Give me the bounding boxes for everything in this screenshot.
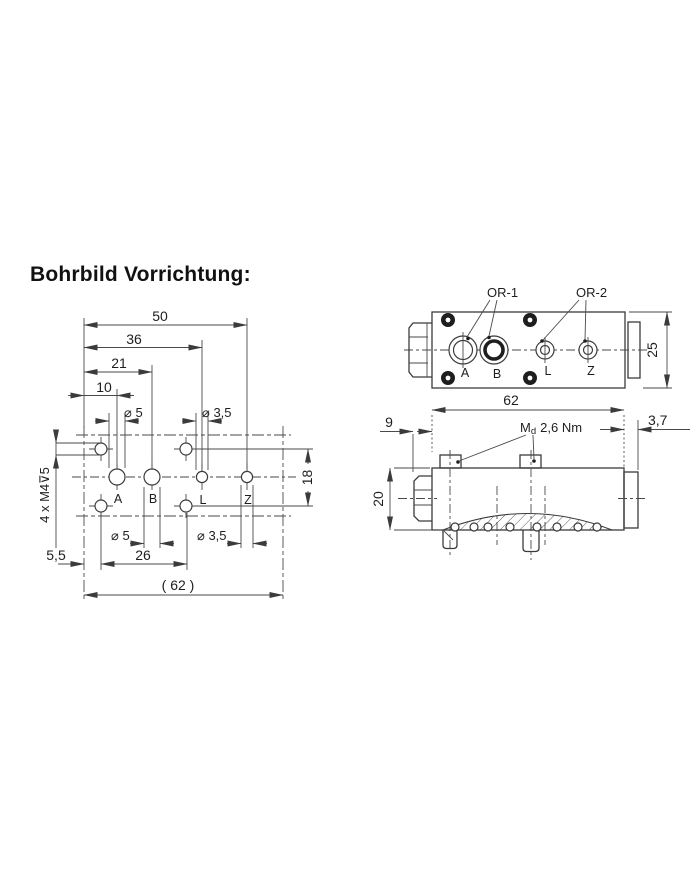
dia35-top-label: ⌀ 3,5 [202, 405, 232, 420]
thread-hole-3 [95, 500, 107, 512]
dia5-top-label: ⌀ 5 [124, 405, 143, 420]
dim-36-label: 36 [126, 331, 142, 347]
technical-drawing: 50 36 21 10 ⌀ 5 ⌀ 3,5 18 4 x M4⊽5 ⌀ 5 ⌀ … [0, 0, 700, 869]
port-a-top [449, 332, 477, 368]
top-port-label-b: B [493, 367, 501, 381]
section-cutaway [443, 514, 612, 532]
port-b-top [480, 336, 508, 364]
dia35-bottom-label: ⌀ 3,5 [197, 528, 227, 543]
dia5-bottom-label: ⌀ 5 [111, 528, 130, 543]
port-label-b: B [149, 492, 157, 506]
top-port-label-a: A [461, 366, 470, 380]
drawing-page: Bohrbild Vorrichtung: [0, 0, 700, 869]
port-label-z: Z [244, 493, 252, 507]
thread-hole-1 [95, 443, 107, 455]
drilling-pattern-view: 50 36 21 10 ⌀ 5 ⌀ 3,5 18 4 x M4⊽5 ⌀ 5 ⌀ … [37, 308, 316, 602]
dim-10-label: 10 [96, 379, 112, 395]
dim-62-overall-label: ( 62 ) [162, 577, 195, 593]
port-z-top [579, 337, 597, 363]
oring1-label: OR-1 [487, 285, 518, 300]
port-center-lines-side [450, 450, 545, 560]
top-screws [440, 455, 541, 468]
port-l-top [536, 337, 554, 363]
dim-21-label: 21 [111, 355, 127, 371]
torque-label: Md2,6 Nm [520, 420, 582, 437]
side-extension-lines [394, 415, 638, 530]
torque-leaders [459, 435, 534, 461]
dim-37-label: 3,7 [648, 412, 668, 428]
block-side-view: Md2,6 Nm 62 9 3,7 20 [370, 392, 690, 560]
dim-20-label: 20 [370, 491, 386, 507]
dim-55-label: 5,5 [46, 547, 66, 563]
dim-25-label: 25 [644, 342, 660, 358]
thread-hole-2 [180, 443, 192, 455]
hole-b [144, 469, 160, 485]
dim-26-label: 26 [135, 547, 151, 563]
hole-a [109, 469, 125, 485]
dimension-lines [56, 325, 308, 595]
thread-note-label: 4 x M4⊽5 [37, 467, 52, 523]
block-top-view: OR-1 OR-2 A B L Z 25 [404, 285, 672, 388]
dim-9-label: 9 [385, 414, 393, 430]
bottom-pins [443, 530, 539, 552]
oring2-label: OR-2 [576, 285, 607, 300]
hole-l [196, 471, 207, 482]
port-label-a: A [114, 492, 123, 506]
hole-z [241, 471, 252, 482]
dim-50-label: 50 [152, 308, 168, 324]
top-port-label-z: Z [587, 364, 595, 378]
dim-62-label: 62 [503, 392, 519, 408]
dim-18-label: 18 [299, 470, 315, 486]
port-label-l: L [200, 493, 207, 507]
side-tab [624, 472, 638, 528]
top-port-label-l: L [545, 364, 552, 378]
thread-hole-4 [180, 500, 192, 512]
